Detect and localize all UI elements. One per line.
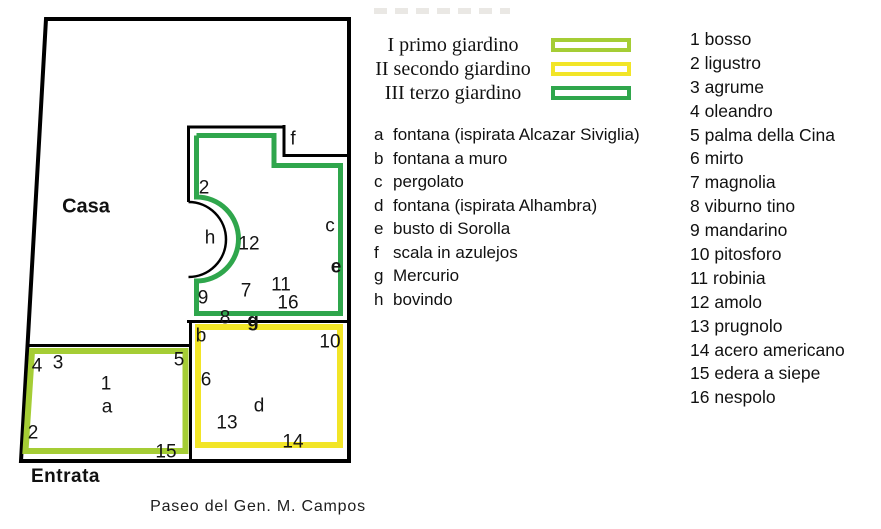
plant-item-1: 1 bosso	[690, 28, 845, 52]
map-label-15: 15	[155, 443, 176, 462]
plant-num: 13	[690, 316, 709, 336]
garden-legend-label: I primo giardino	[363, 34, 543, 57]
plant-label: acero americano	[714, 340, 844, 360]
plant-item-3: 3 agrume	[690, 76, 845, 100]
plant-num: 3	[690, 77, 700, 97]
map-label-1: 1	[101, 375, 112, 394]
map-label-14: 14	[282, 433, 303, 452]
plant-label: robinia	[713, 268, 766, 288]
feature-key: a	[374, 123, 393, 147]
feature-label: bovindo	[393, 290, 453, 309]
entrata-label: Entrata	[31, 466, 100, 488]
feature-label: pergolato	[393, 172, 464, 191]
plant-label: prugnolo	[714, 316, 782, 336]
feature-label: busto di Sorolla	[393, 219, 510, 238]
feature-item-a: afontana (ispirata Alcazar Siviglia)	[374, 123, 640, 147]
map-label-a: a	[102, 398, 113, 417]
plant-num: 1	[690, 29, 700, 49]
map-label-8: 8	[220, 309, 231, 328]
plant-num: 7	[690, 172, 700, 192]
map-label-b: b	[196, 327, 207, 346]
plant-num: 2	[690, 53, 700, 73]
plant-item-7: 7 magnolia	[690, 171, 845, 195]
plant-num: 8	[690, 196, 700, 216]
feature-label: Mercurio	[393, 266, 459, 285]
map-label-9: 9	[198, 289, 209, 308]
plant-num: 11	[690, 268, 708, 288]
plant-item-13: 13 prugnolo	[690, 315, 845, 339]
feature-key: f	[374, 241, 393, 265]
map-label-10: 10	[319, 333, 340, 352]
garden-legend-row-terzo: III terzo giardino	[363, 81, 631, 105]
feature-item-d: dfontana (ispirata Alhambra)	[374, 194, 640, 218]
map-label-d: d	[254, 397, 265, 416]
feature-key: d	[374, 194, 393, 218]
terzo-color-swatch	[551, 86, 631, 100]
interior-walls	[29, 125, 349, 459]
feature-label: scala in azulejos	[393, 243, 518, 262]
map-label-4: 4	[32, 357, 43, 376]
plant-item-15: 15 edera a siepe	[690, 362, 845, 386]
map-label-2-terzo: 2	[199, 179, 210, 198]
map-label-c: c	[325, 217, 335, 236]
street-label: Paseo del Gen. M. Campos	[143, 498, 373, 516]
feature-key: c	[374, 170, 393, 194]
plant-num: 6	[690, 148, 700, 168]
map-label-16: 16	[277, 294, 298, 313]
feature-key: h	[374, 288, 393, 312]
casa-label: Casa	[62, 196, 110, 219]
plant-label: magnolia	[705, 172, 776, 192]
map-label-12: 12	[238, 235, 259, 254]
plant-label: oleandro	[705, 101, 773, 121]
plant-num: 9	[690, 220, 700, 240]
garden-plan-page: f 2 h 12 c e 9 7 11 16 8 g b 10 6 d 13 1…	[0, 0, 881, 529]
plant-label: palma della Cina	[705, 125, 835, 145]
map-label-f: f	[290, 130, 295, 149]
plant-num: 12	[690, 292, 709, 312]
map-label-h: h	[205, 229, 216, 248]
plant-label: nespolo	[714, 387, 775, 407]
secondo-color-swatch	[551, 62, 631, 76]
garden-legend: I primo giardino II secondo giardino III…	[363, 33, 631, 105]
feature-label: fontana (ispirata Alhambra)	[393, 196, 597, 215]
map-label-7: 7	[241, 282, 252, 301]
garden-legend-row-secondo: II secondo giardino	[363, 57, 631, 81]
plant-label: edera a siepe	[714, 363, 820, 383]
plant-item-8: 8 viburno tino	[690, 195, 845, 219]
plant-label: mandarino	[705, 220, 788, 240]
garden-legend-label: III terzo giardino	[363, 82, 543, 105]
plant-item-14: 14 acero americano	[690, 339, 845, 363]
feature-item-c: cpergolato	[374, 170, 640, 194]
feature-item-g: gMercurio	[374, 264, 640, 288]
plant-item-5: 5 palma della Cina	[690, 124, 845, 148]
plant-label: amolo	[714, 292, 762, 312]
plant-label: bosso	[705, 29, 752, 49]
plants-legend: 1 bosso 2 ligustro 3 agrume 4 oleandro 5…	[690, 28, 845, 410]
feature-item-h: hbovindo	[374, 288, 640, 312]
map-label-2-primo: 2	[28, 424, 39, 443]
plant-item-2: 2 ligustro	[690, 52, 845, 76]
plant-num: 16	[690, 387, 709, 407]
feature-item-f: fscala in azulejos	[374, 241, 640, 265]
plant-item-12: 12 amolo	[690, 291, 845, 315]
feature-key: g	[374, 264, 393, 288]
terzo-giardino-outline	[197, 136, 341, 314]
plant-label: pitosforo	[714, 244, 781, 264]
plant-num: 4	[690, 101, 700, 121]
garden-legend-label: II secondo giardino	[363, 58, 543, 81]
plant-num: 15	[690, 363, 709, 383]
plant-label: agrume	[705, 77, 764, 97]
feature-item-e: ebusto di Sorolla	[374, 217, 640, 241]
feature-label: fontana a muro	[393, 149, 507, 168]
plant-item-11: 11 robinia	[690, 267, 845, 291]
plant-item-9: 9 mandarino	[690, 219, 845, 243]
map-label-3: 3	[53, 354, 64, 373]
garden-legend-row-primo: I primo giardino	[363, 33, 631, 57]
map-label-13: 13	[216, 414, 237, 433]
map-label-5: 5	[174, 351, 185, 370]
map-label-6: 6	[201, 371, 212, 390]
plant-label: ligustro	[705, 53, 761, 73]
plant-label: viburno tino	[705, 196, 795, 216]
plant-label: mirto	[705, 148, 744, 168]
features-legend: afontana (ispirata Alcazar Siviglia) bfo…	[374, 123, 640, 311]
primo-color-swatch	[551, 38, 631, 52]
plant-num: 10	[690, 244, 709, 264]
feature-item-b: bfontana a muro	[374, 147, 640, 171]
feature-key: e	[374, 217, 393, 241]
plant-num: 14	[690, 340, 709, 360]
map-label-g: g	[247, 312, 259, 331]
plant-item-6: 6 mirto	[690, 147, 845, 171]
map-label-e: e	[331, 258, 342, 277]
plant-item-10: 10 pitosforo	[690, 243, 845, 267]
feature-key: b	[374, 147, 393, 171]
plant-num: 5	[690, 125, 700, 145]
feature-label: fontana (ispirata Alcazar Siviglia)	[393, 125, 640, 144]
plant-item-16: 16 nespolo	[690, 386, 845, 410]
plant-item-4: 4 oleandro	[690, 100, 845, 124]
